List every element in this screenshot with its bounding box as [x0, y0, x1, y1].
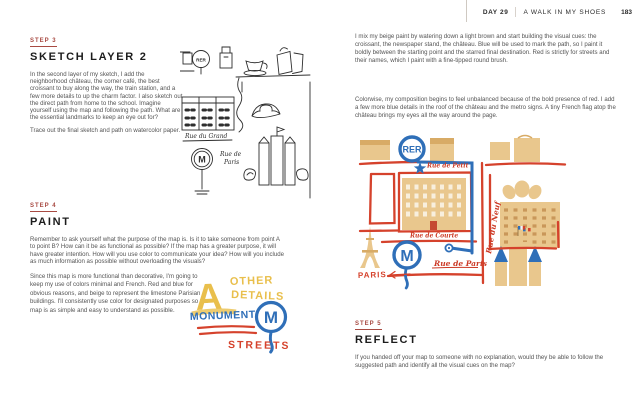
- map-french-flag: [518, 226, 520, 230]
- map-metro-drip: [405, 269, 407, 288]
- map-street-bottom: Rue de Paris: [433, 259, 488, 268]
- sketch-bush-left: [244, 169, 256, 180]
- right-paragraph-1: I mix my beige paint by watering down a …: [355, 33, 617, 65]
- sketch-chateau: [259, 143, 269, 185]
- step5-paragraph-1: If you handed off your map to someone wi…: [355, 354, 617, 370]
- sketch-linework: [180, 47, 310, 198]
- map-right-building: [500, 202, 560, 248]
- sketch-rer-text: RER: [196, 58, 206, 63]
- running-header: DAY 29 A WALK IN MY SHOES 183: [483, 7, 632, 17]
- step5-heading: REFLECT: [355, 334, 617, 346]
- page-crease-mark: [466, 0, 467, 22]
- map-street-right: Rue du Neuf: [484, 199, 502, 255]
- map-box-1: [490, 142, 510, 160]
- sketch-bush-right: [297, 169, 309, 180]
- sketch-coffee-cup: [246, 61, 263, 71]
- sketch-newspaper-bag: [277, 48, 292, 75]
- step4-paragraph-2: Since this map is more functional than d…: [30, 273, 212, 316]
- step5-label: STEP 5: [355, 321, 382, 330]
- sketch-street-label-2a: Rue de: [219, 151, 242, 158]
- step4-paragraph-1: Remember to ask yourself what the purpos…: [30, 236, 286, 266]
- map-rer-text: RER: [402, 145, 422, 155]
- step3-paragraph-2: Trace out the final sketch and path on w…: [30, 127, 183, 134]
- key-other: OTHER: [230, 274, 274, 288]
- step3-heading: SKETCH LAYER 2: [30, 51, 183, 63]
- header-book-title: A WALK IN MY SHOES: [523, 9, 606, 16]
- map-eiffel-tower: [360, 226, 380, 268]
- map-street-middle: Rue de Courte: [409, 233, 458, 240]
- map-metro-text: M: [400, 248, 413, 265]
- map-croissant: [500, 181, 544, 202]
- key-monuments: MONUMENTS: [190, 308, 264, 323]
- painted-map-illustration: RER M Rue de Pétit Rue de Courte Rue de …: [352, 134, 634, 312]
- step4-label: STEP 4: [30, 203, 57, 212]
- header-page-number: 183: [621, 9, 632, 16]
- key-details: DETAILS: [231, 289, 285, 303]
- sketch-street-label-1: Rue du Grand: [184, 133, 228, 140]
- key-red-lines: [198, 326, 256, 334]
- step5-section: STEP 5 REFLECT If you handed off your ma…: [355, 312, 617, 370]
- step3-section: STEP 3 SKETCH LAYER 2 In the second laye…: [30, 29, 183, 135]
- book-spread: DAY 29 A WALK IN MY SHOES 183 STEP 3 SKE…: [0, 0, 640, 419]
- sketch-metro-text: M: [198, 155, 206, 165]
- ink-sketch-illustration: RER M Rue du Grand Rue de Paris: [180, 40, 322, 202]
- right-paragraph-2: Colorwise, my composition begins to feel…: [355, 96, 617, 120]
- color-key-doodle: A OTHER DETAILS MONUMENTS M STREETS: [188, 270, 314, 366]
- sketch-coffee-machine: [220, 53, 232, 68]
- map-flag-red-dot: [528, 228, 531, 231]
- header-day: DAY 29: [483, 9, 509, 16]
- step3-label: STEP 3: [30, 38, 57, 47]
- key-metro-m: M: [264, 308, 278, 327]
- step3-paragraph-1: In the second layer of my sketch, I add …: [30, 71, 183, 121]
- header-divider: [515, 7, 516, 17]
- map-street-top: Rue de Pétit: [426, 163, 469, 170]
- sketch-croissant: [252, 104, 280, 116]
- map-box-2: [514, 138, 540, 162]
- step4-heading: PAINT: [30, 216, 286, 228]
- map-central-door: [430, 221, 437, 230]
- key-streets: STREETS: [228, 339, 291, 352]
- map-city-label: PARIS: [358, 270, 387, 280]
- sketch-street-label-2b: Paris: [223, 159, 239, 166]
